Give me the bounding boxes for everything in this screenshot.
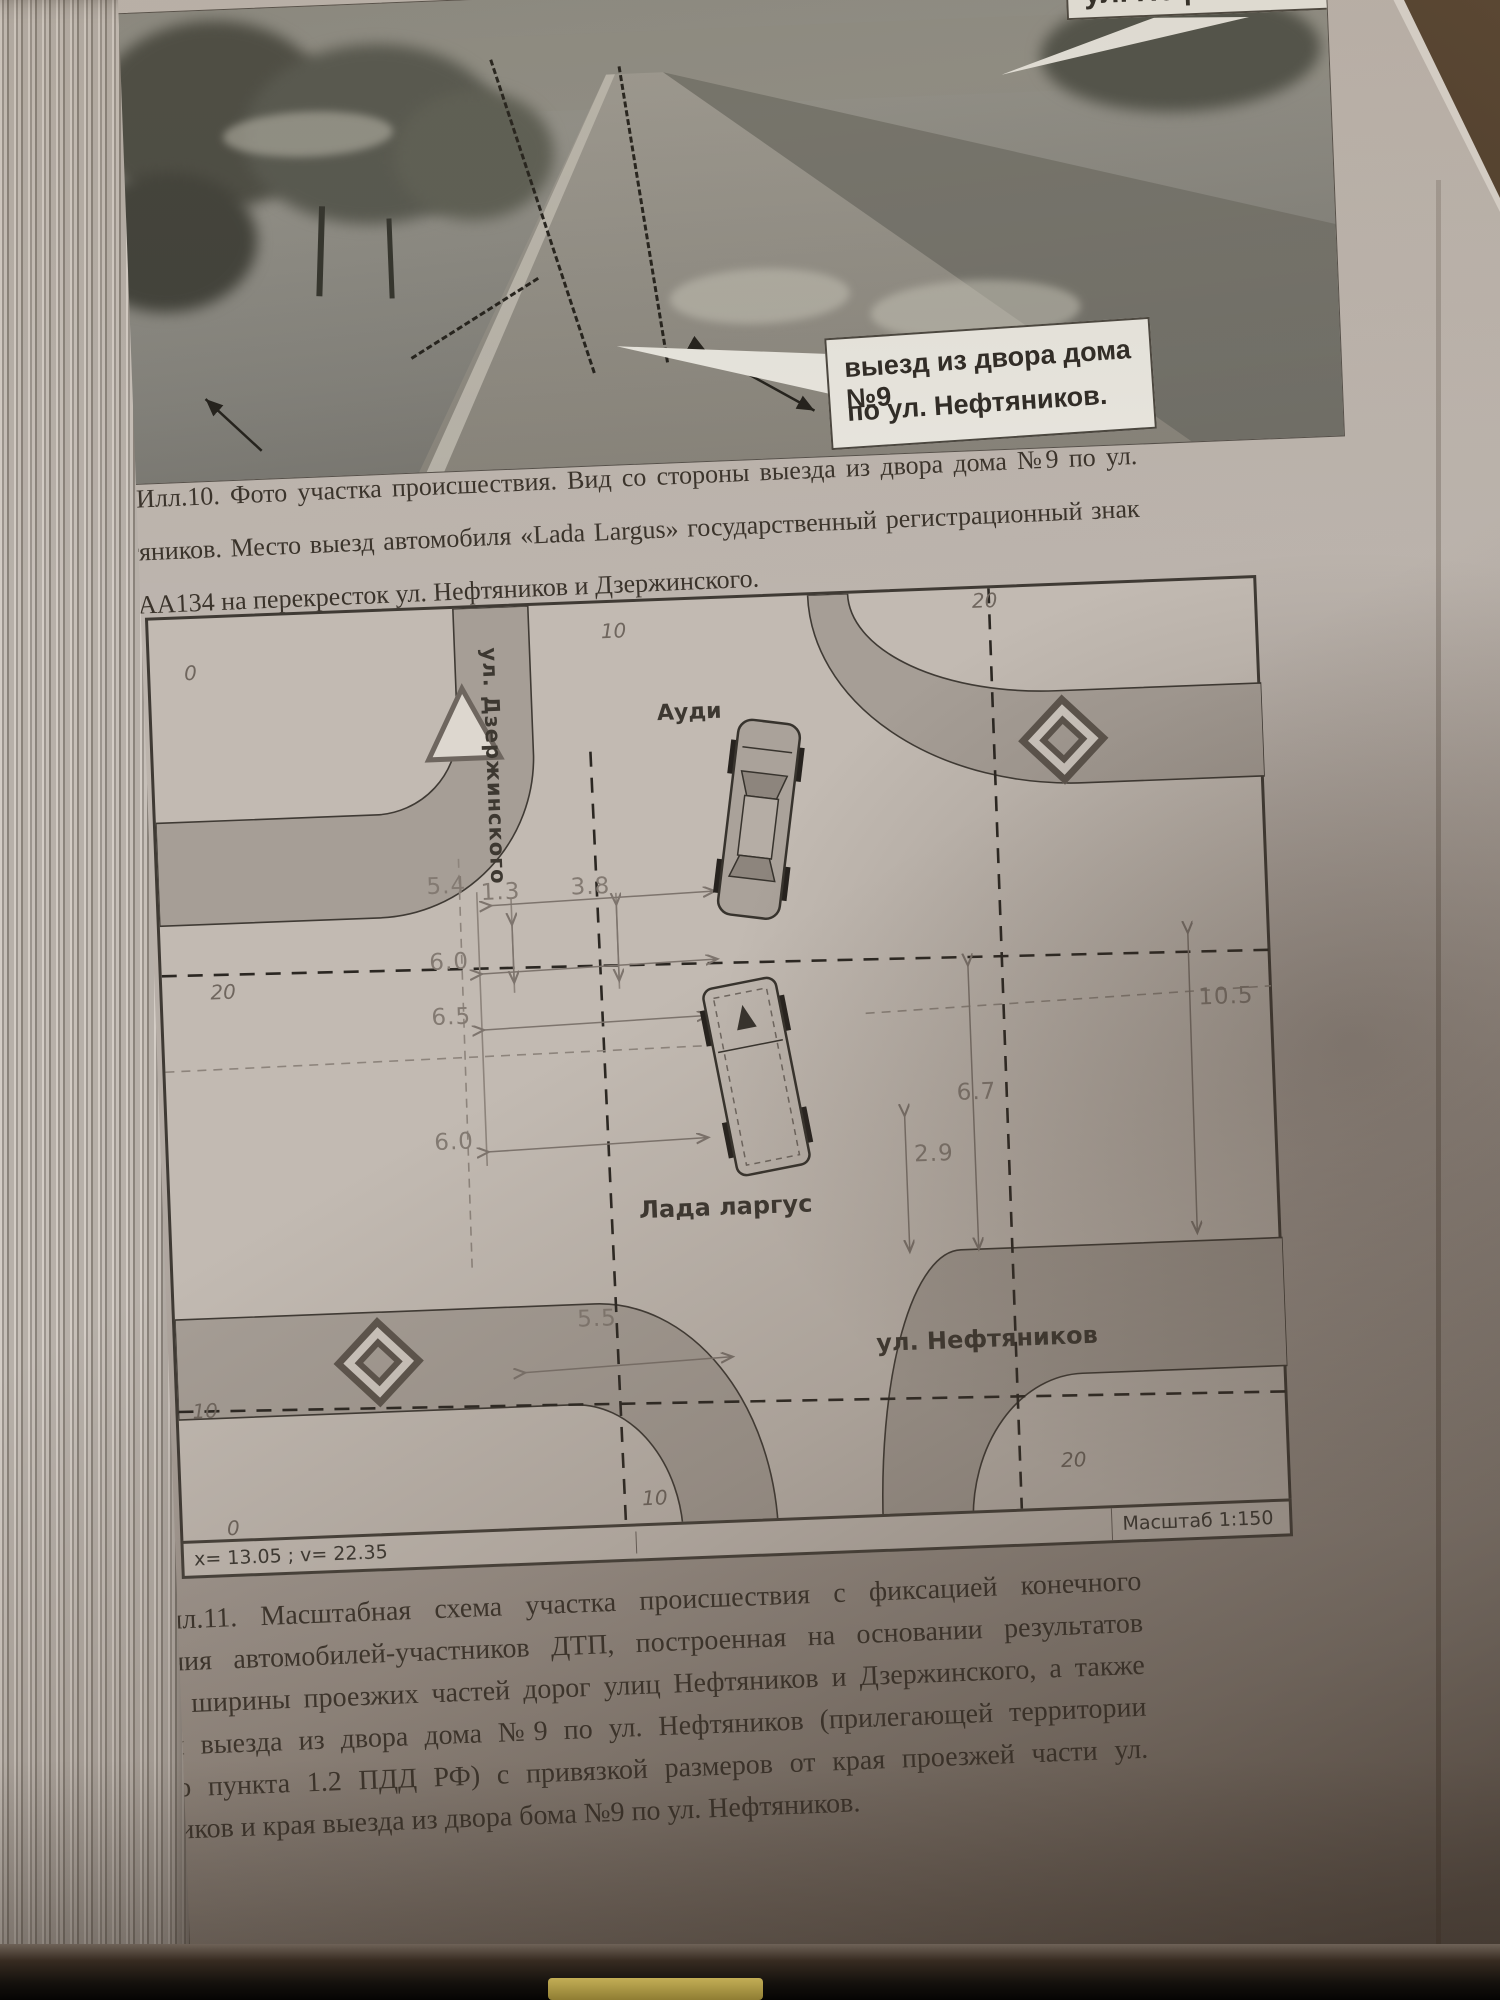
accident-site-photo: ул. Нефтяников выезд из двора дома №9 по… bbox=[57, 0, 1345, 487]
car-label-audi: Ауди bbox=[657, 699, 722, 726]
grid-tick: 0 bbox=[226, 1516, 240, 1540]
grid-tick: 0 bbox=[184, 661, 198, 685]
dimension-1-3: 1.3 bbox=[480, 879, 521, 907]
scale-scheme-panel: ул. Дзержинского ул. Нефтяников Ауди Лад… bbox=[145, 575, 1293, 1579]
dimension-6-7: 6.7 bbox=[956, 1078, 997, 1106]
scale-label: Масштаб 1:150 bbox=[1112, 1506, 1290, 1535]
document-page-photo: ул. Нефтяников выезд из двора дома №9 по… bbox=[0, 0, 1500, 2000]
coords-readout: х= 13.05 ; v= 22.35 bbox=[184, 1531, 638, 1570]
dimension-10-5: 10.5 bbox=[1198, 982, 1254, 1010]
dimension-6-0b: 6.0 bbox=[434, 1128, 475, 1156]
grid-tick: 10 bbox=[600, 618, 626, 643]
grid-tick: 20 bbox=[210, 979, 236, 1004]
grid-tick: 10 bbox=[192, 1398, 218, 1423]
dimension-6-5: 6.5 bbox=[431, 1003, 472, 1031]
dimension-3-8: 3.8 bbox=[570, 873, 611, 901]
street-callout-label: ул. Нефтяников bbox=[1083, 0, 1321, 11]
grid-tick: 20 bbox=[971, 588, 997, 613]
dimension-6-0a: 6.0 bbox=[429, 949, 470, 977]
verge-bottom-left bbox=[175, 1297, 779, 1550]
dimension-5-4: 5.4 bbox=[426, 873, 467, 901]
audi-vehicle bbox=[711, 718, 808, 921]
verge-bottom-right bbox=[873, 1237, 1293, 1528]
dimension-5-5: 5.5 bbox=[577, 1305, 618, 1333]
verge-top-right bbox=[808, 578, 1265, 793]
lada-largus-vehicle bbox=[696, 975, 817, 1178]
intersection-scheme-graphic bbox=[148, 578, 1293, 1550]
grid-tick: 20 bbox=[1060, 1447, 1086, 1472]
dimension-2-9: 2.9 bbox=[914, 1140, 955, 1168]
grid-tick: 10 bbox=[642, 1485, 668, 1510]
page-edge-seam bbox=[1436, 180, 1441, 1970]
caption-ill11: Илл.11. Масштабная схема участка происше… bbox=[79, 1561, 1150, 1855]
table-object-sliver bbox=[548, 1978, 763, 2000]
